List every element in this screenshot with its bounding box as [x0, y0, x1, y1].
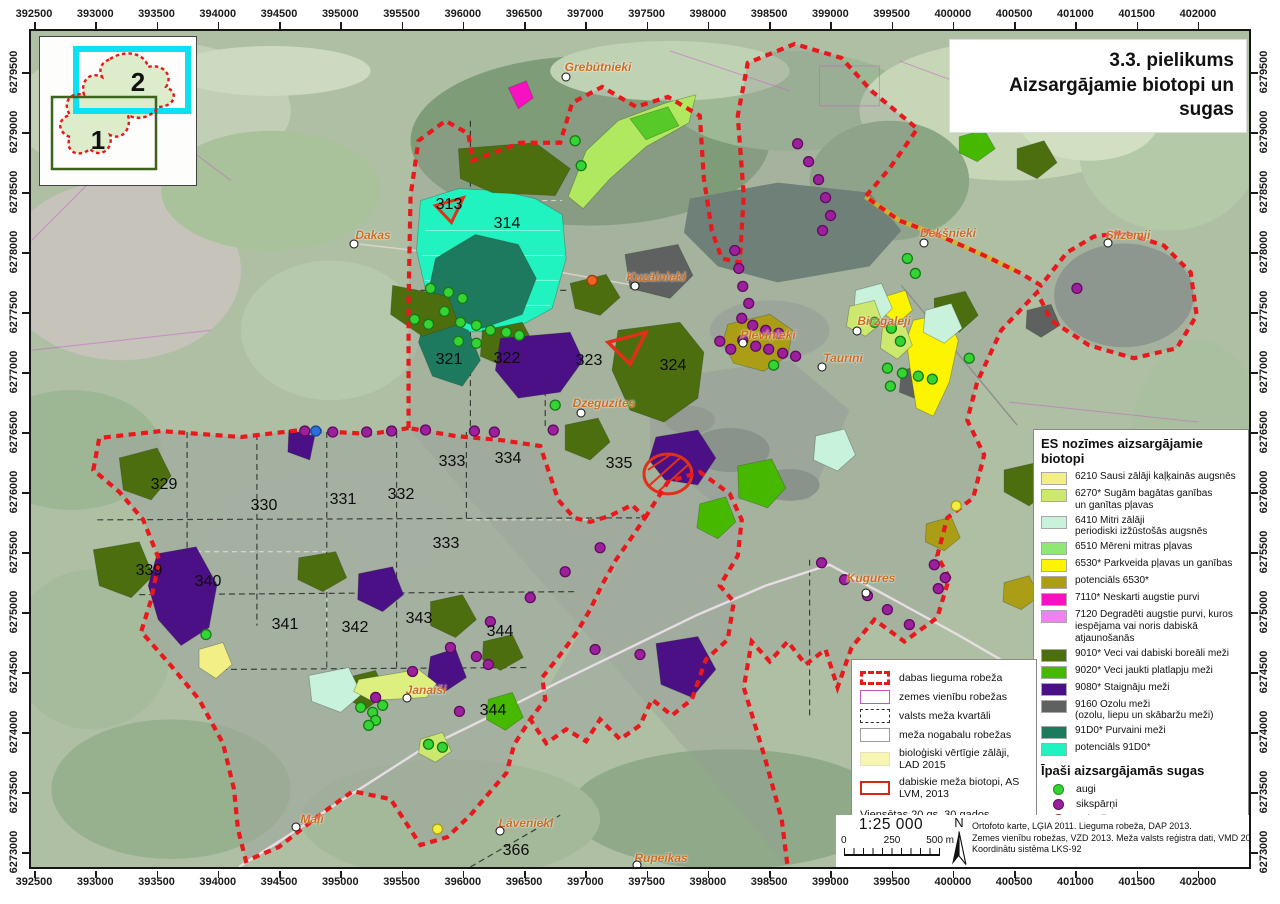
homestead-marker — [920, 239, 929, 248]
grid-label-northing: 6277000 — [1258, 351, 1270, 394]
grid-label-easting: 394000 — [199, 8, 236, 20]
legend-boundary-row: bioloģiski vērtīgie zālāji, LAD 2015 — [860, 747, 1028, 771]
grid-label-easting: 402000 — [1180, 8, 1217, 20]
grid-tick — [22, 432, 29, 434]
place-label: Kugures — [847, 571, 896, 585]
grid-tick — [22, 192, 29, 194]
grid-tick — [1014, 871, 1016, 878]
grid-tick — [22, 792, 29, 794]
grid-label-easting: 394500 — [261, 8, 298, 20]
scale-ruler — [844, 848, 940, 856]
grid-tick — [22, 612, 29, 614]
grid-tick — [22, 132, 29, 134]
grid-label-easting: 399000 — [812, 8, 849, 20]
legend-biotope-row: 9080* Staignāju meži — [1041, 682, 1241, 696]
grid-tick — [22, 552, 29, 554]
scale-block: 1:25 000 0 250 500 m — [836, 815, 946, 856]
grid-label-easting: 398000 — [690, 8, 727, 20]
inset-region-1-label: 1 — [91, 125, 105, 155]
quarter-number: 334 — [495, 450, 522, 468]
grid-tick — [340, 22, 342, 29]
biotope-color-swatch — [1041, 542, 1067, 555]
legend-biotope-row: 91D0* Purvaini meži — [1041, 725, 1241, 739]
place-label: Grebūtnieki — [565, 60, 632, 74]
grid-tick — [1198, 22, 1200, 29]
credits-line-2: Zemes vienību robežas, VZD 2013. Meža va… — [972, 833, 1249, 845]
quarter-number: 340 — [195, 573, 222, 591]
credits-line-3: Koordinātu sistēma LKS-92 — [972, 844, 1249, 856]
legend-boundary-row: dabiskie meža biotopi, AS LVM, 2013 — [860, 776, 1028, 800]
inset-map-graphic: 2 1 — [40, 37, 196, 185]
boundary-label: dabas lieguma robeža — [899, 672, 1002, 684]
biotope-label: 7120 Degradēti augstie purvi, kuros iesp… — [1075, 609, 1241, 644]
quarter-number: 344 — [487, 623, 514, 641]
grid-tick — [34, 871, 36, 878]
place-label: Tauriņi — [823, 351, 863, 365]
biotope-label: 9010* Veci vai dabiski boreāli meži — [1075, 648, 1229, 660]
grid-tick — [892, 22, 894, 29]
grid-label-northing: 6274000 — [1258, 711, 1270, 754]
title-line-2: Aizsargājamie biotopi un sugas — [958, 74, 1234, 123]
grid-label-northing: 6278000 — [1258, 231, 1270, 274]
grid-label-easting: 401000 — [1057, 8, 1094, 20]
inset-region-2-label: 2 — [131, 67, 145, 97]
species-dot-icon — [1053, 799, 1064, 810]
legend-species-row: augi — [1053, 783, 1241, 795]
place-label: Janaiši — [406, 683, 447, 697]
quarter-number: 314 — [494, 215, 521, 233]
grid-tick — [22, 312, 29, 314]
species-dot-icon — [1053, 784, 1064, 795]
grid-tick — [340, 871, 342, 878]
grid-tick — [279, 22, 281, 29]
grid-label-easting: 395500 — [383, 8, 420, 20]
legend-biotope-row: 6530* Parkveida pļavas un ganības — [1041, 558, 1241, 572]
biotope-label: 9080* Staignāju meži — [1075, 682, 1170, 694]
grid-tick — [769, 871, 771, 878]
biotope-label: 9020* Veci jaukti platlapju meži — [1075, 665, 1213, 677]
map-frame: 3133143213223233243293303313323333343353… — [29, 29, 1251, 869]
grid-tick — [22, 492, 29, 494]
grid-label-northing: 6278500 — [8, 171, 20, 214]
grid-tick — [22, 732, 29, 734]
grid-label-easting: 393000 — [77, 8, 114, 20]
grid-label-northing: 6277500 — [8, 291, 20, 334]
grid-label-northing: 6276000 — [8, 471, 20, 514]
grid-tick — [1251, 72, 1258, 74]
grid-label-easting: 395000 — [322, 8, 359, 20]
grid-tick — [1137, 871, 1139, 878]
quarter-number: 321 — [436, 351, 463, 369]
legend-biotopes-header: ES nozīmes aizsargājamie biotopi — [1041, 436, 1241, 466]
grid-tick — [1251, 672, 1258, 674]
scale-ratio: 1:25 000 — [836, 816, 946, 834]
quarter-number: 330 — [251, 497, 278, 515]
grid-tick — [708, 871, 710, 878]
grid-tick — [1137, 22, 1139, 29]
biotope-color-swatch — [1041, 576, 1067, 589]
quarter-number: 329 — [151, 476, 178, 494]
grid-label-northing: 6275000 — [1258, 591, 1270, 634]
quarter-number: 322 — [494, 350, 521, 368]
grid-label-northing: 6274000 — [8, 711, 20, 754]
grid-tick — [22, 252, 29, 254]
grid-label-easting: 400500 — [996, 8, 1033, 20]
grid-tick — [708, 22, 710, 29]
homestead-marker — [853, 327, 862, 336]
grid-tick — [892, 871, 894, 878]
legend-species-row: sikspārņi — [1053, 798, 1241, 810]
homestead-marker — [403, 694, 412, 703]
map-sheet: 3925003930003935003940003945003950003955… — [0, 0, 1280, 904]
quarter-number: 331 — [330, 491, 357, 509]
quarter-number: 339 — [136, 562, 163, 580]
place-label: Dekšnieki — [920, 226, 976, 240]
grid-tick — [1251, 792, 1258, 794]
grid-tick — [1251, 372, 1258, 374]
homestead-marker — [739, 339, 748, 348]
legend-boundaries-items: dabas lieguma robežazemes vienību robeža… — [860, 671, 1028, 800]
scale-zero: 0 — [841, 835, 847, 846]
grid-tick — [1251, 312, 1258, 314]
biotope-label: 6270* Sugām bagātas ganības un ganītas p… — [1075, 488, 1212, 512]
homestead-marker — [496, 827, 505, 836]
grid-label-easting: 401500 — [1118, 8, 1155, 20]
legend-biotope-row: 6210 Sausi zālāji kaļķainās augsnēs — [1041, 471, 1241, 485]
red-outline-symbol — [860, 781, 890, 795]
homestead-marker — [350, 240, 359, 249]
grid-tick — [1251, 492, 1258, 494]
grid-label-northing: 6277500 — [1258, 291, 1270, 334]
quarter-number: 323 — [576, 352, 603, 370]
grid-label-northing: 6273000 — [8, 831, 20, 874]
legend-biotope-row: 9020* Veci jaukti platlapju meži — [1041, 665, 1241, 679]
black-dashed-symbol — [860, 709, 890, 723]
magenta-box-symbol — [860, 690, 890, 704]
grid-tick — [585, 22, 587, 29]
biotope-label: 6530* Parkveida pļavas un ganības — [1075, 558, 1232, 570]
grid-tick — [1251, 552, 1258, 554]
grid-label-easting: 397500 — [628, 8, 665, 20]
homestead-marker — [633, 861, 642, 868]
biotope-label: potenciāls 6530* — [1075, 575, 1149, 587]
grid-label-northing: 6278500 — [1258, 171, 1270, 214]
homestead-marker — [631, 282, 640, 291]
legend-boundary-row: dabas lieguma robeža — [860, 671, 1028, 685]
yellow-fill-symbol — [860, 752, 890, 766]
grid-tick — [1251, 732, 1258, 734]
biotope-color-swatch — [1041, 559, 1067, 572]
grid-tick — [1251, 252, 1258, 254]
grid-tick — [22, 372, 29, 374]
biotope-label: 6510 Mēreni mitras pļavas — [1075, 541, 1192, 553]
grid-label-northing: 6273500 — [1258, 771, 1270, 814]
species-label: augi — [1076, 783, 1096, 795]
biotope-color-swatch — [1041, 743, 1067, 756]
homestead-marker — [562, 73, 571, 82]
grid-label-northing: 6278000 — [8, 231, 20, 274]
grid-tick — [95, 871, 97, 878]
place-label: Rupeikas — [634, 851, 687, 865]
biotope-label: 6210 Sausi zālāji kaļķainās augsnēs — [1075, 471, 1236, 483]
quarter-number: 366 — [503, 842, 530, 860]
grid-label-northing: 6277000 — [8, 351, 20, 394]
grid-label-northing: 6279500 — [1258, 51, 1270, 94]
quarter-number: 324 — [660, 357, 687, 375]
quarter-number: 333 — [433, 535, 460, 553]
biotope-label: 6410 Mitri zālāji periodiski izžūstošās … — [1075, 515, 1207, 539]
biotope-color-swatch — [1041, 593, 1067, 606]
place-label: Pleviņieki — [740, 328, 795, 342]
grid-tick — [463, 22, 465, 29]
homestead-marker — [818, 363, 827, 372]
quarter-number: 313 — [436, 196, 463, 214]
biotope-color-swatch — [1041, 666, 1067, 679]
grid-label-northing: 6279000 — [8, 111, 20, 154]
grid-label-northing: 6276500 — [1258, 411, 1270, 454]
grid-tick — [1251, 852, 1258, 854]
grid-label-easting: 397000 — [567, 8, 604, 20]
quarter-number: 342 — [342, 619, 369, 637]
grid-label-easting: 392500 — [16, 8, 53, 20]
quarter-number: 335 — [606, 455, 633, 473]
biotope-color-swatch — [1041, 649, 1067, 662]
place-label: Silzemji — [1106, 228, 1151, 242]
legend-biotopes: ES nozīmes aizsargājamie biotopi 6210 Sa… — [1033, 429, 1249, 864]
quarter-number: 333 — [439, 453, 466, 471]
biotope-color-swatch — [1041, 700, 1067, 713]
homestead-marker — [862, 589, 871, 598]
grid-label-northing: 6279000 — [1258, 111, 1270, 154]
biotope-color-swatch — [1041, 472, 1067, 485]
grid-label-northing: 6274500 — [1258, 651, 1270, 694]
legend-biotope-row: potenciāls 91D0* — [1041, 742, 1241, 756]
grid-label-easting: 396000 — [444, 8, 481, 20]
place-label: Maļi — [300, 812, 323, 826]
species-label: sikspārņi — [1076, 798, 1117, 810]
legend-biotope-row: 7120 Degradēti augstie purvi, kuros iesp… — [1041, 609, 1241, 644]
grid-tick — [218, 871, 220, 878]
biotope-label: 9160 Ozolu meži (ozolu, liepu un skābarž… — [1075, 699, 1213, 723]
white-box-symbol — [860, 728, 890, 742]
grid-tick — [157, 22, 159, 29]
legend-biotope-row: 9160 Ozolu meži (ozolu, liepu un skābarž… — [1041, 699, 1241, 723]
grid-tick — [218, 22, 220, 29]
grid-tick — [22, 72, 29, 74]
grid-tick — [1251, 132, 1258, 134]
scale-bar: 0 250 500 m — [844, 848, 940, 856]
legend-biotope-row: 7110* Neskarti augstie purvi — [1041, 592, 1241, 606]
grid-label-northing: 6276500 — [8, 411, 20, 454]
grid-label-northing: 6275000 — [8, 591, 20, 634]
grid-tick — [769, 22, 771, 29]
grid-label-northing: 6273500 — [8, 771, 20, 814]
title-line-1: 3.3. pielikums — [958, 49, 1234, 74]
grid-label-easting: 396500 — [506, 8, 543, 20]
legend-boundary-row: valsts meža kvartāli — [860, 709, 1028, 723]
legend-biotope-row: 6410 Mitri zālāji periodiski izžūstošās … — [1041, 515, 1241, 539]
grid-tick — [22, 672, 29, 674]
grid-tick — [1251, 432, 1258, 434]
grid-tick — [279, 871, 281, 878]
biotope-color-swatch — [1041, 683, 1067, 696]
quarter-number: 343 — [406, 610, 433, 628]
credits-line-1: Ortofoto karte, LĢIA 2011. Lieguma robež… — [972, 821, 1249, 833]
boundary-label: dabiskie meža biotopi, AS LVM, 2013 — [899, 776, 1028, 800]
grid-tick — [34, 22, 36, 29]
grid-label-northing: 6279500 — [8, 51, 20, 94]
grid-tick — [402, 871, 404, 878]
grid-label-northing: 6275500 — [1258, 531, 1270, 574]
boundary-label: zemes vienību robežas — [899, 691, 1007, 703]
grid-tick — [647, 22, 649, 29]
title-box: 3.3. pielikums Aizsargājamie biotopi un … — [949, 39, 1247, 133]
biotope-label: 91D0* Purvaini meži — [1075, 725, 1166, 737]
quarter-number: 341 — [272, 616, 299, 634]
boundary-label: bioloģiski vērtīgie zālāji, LAD 2015 — [899, 747, 1028, 771]
grid-tick — [647, 871, 649, 878]
scale-end: 500 m — [926, 835, 954, 846]
place-label: Dakas — [355, 228, 390, 242]
grid-tick — [1075, 871, 1077, 878]
biotope-color-swatch — [1041, 610, 1067, 623]
grid-label-northing: 6276000 — [1258, 471, 1270, 514]
grid-tick — [1251, 612, 1258, 614]
legend-biotope-row: 6270* Sugām bagātas ganības un ganītas p… — [1041, 488, 1241, 512]
grid-label-easting: 398500 — [751, 8, 788, 20]
grid-tick — [953, 22, 955, 29]
grid-tick — [95, 22, 97, 29]
grid-label-northing: 6275500 — [8, 531, 20, 574]
legend-biotope-row: 6510 Mēreni mitras pļavas — [1041, 541, 1241, 555]
grid-tick — [22, 852, 29, 854]
grid-tick — [524, 22, 526, 29]
biotope-color-swatch — [1041, 726, 1067, 739]
grid-tick — [463, 871, 465, 878]
grid-label-easting: 400000 — [935, 8, 972, 20]
red-dashed-symbol — [860, 671, 890, 685]
grid-tick — [1251, 192, 1258, 194]
grid-tick — [1075, 22, 1077, 29]
biotope-color-swatch — [1041, 516, 1067, 529]
grid-tick — [953, 871, 955, 878]
grid-tick — [402, 22, 404, 29]
grid-tick — [585, 871, 587, 878]
biotope-label: potenciāls 91D0* — [1075, 742, 1151, 754]
homestead-marker — [577, 409, 586, 418]
homestead-marker — [1104, 239, 1113, 248]
grid-tick — [1014, 22, 1016, 29]
quarter-number: 344 — [480, 702, 507, 720]
grid-label-easting: 393500 — [138, 8, 175, 20]
grid-tick — [157, 871, 159, 878]
quarter-number: 332 — [388, 486, 415, 504]
map-canvas: 3133143213223233243293303313323333343353… — [31, 31, 1249, 867]
grid-tick — [830, 22, 832, 29]
place-label: Lāvenieki — [499, 816, 554, 830]
place-label: Birzgaleji — [857, 314, 910, 328]
legend-boundary-row: meža nogabalu robežas — [860, 728, 1028, 742]
legend-species-header: Īpaši aizsargājamās sugas — [1041, 763, 1241, 778]
map-marginalia: 1:25 000 0 250 500 m N — [836, 815, 1249, 867]
grid-label-northing: 6273000 — [1258, 831, 1270, 874]
legend-biotopes-items: 6210 Sausi zālāji kaļķainās augsnēs6270*… — [1041, 471, 1241, 756]
homestead-marker — [292, 823, 301, 832]
grid-label-easting: 399500 — [873, 8, 910, 20]
grid-tick — [524, 871, 526, 878]
biotope-color-swatch — [1041, 489, 1067, 502]
boundary-label: meža nogabalu robežas — [899, 729, 1011, 741]
legend-boundary-row: zemes vienību robežas — [860, 690, 1028, 704]
north-arrow-icon — [946, 828, 972, 867]
grid-label-northing: 6274500 — [8, 651, 20, 694]
legend-biotope-row: 9010* Veci vai dabiski boreāli meži — [1041, 648, 1241, 662]
scale-mid: 250 — [884, 835, 901, 846]
grid-tick — [1198, 871, 1200, 878]
inset-overview-map: 2 1 — [39, 36, 197, 186]
boundary-label: valsts meža kvartāli — [899, 710, 991, 722]
credits: Ortofoto karte, LĢIA 2011. Lieguma robež… — [972, 815, 1249, 856]
biotope-label: 7110* Neskarti augstie purvi — [1075, 592, 1199, 604]
grid-tick — [830, 871, 832, 878]
legend-biotope-row: potenciāls 6530* — [1041, 575, 1241, 589]
